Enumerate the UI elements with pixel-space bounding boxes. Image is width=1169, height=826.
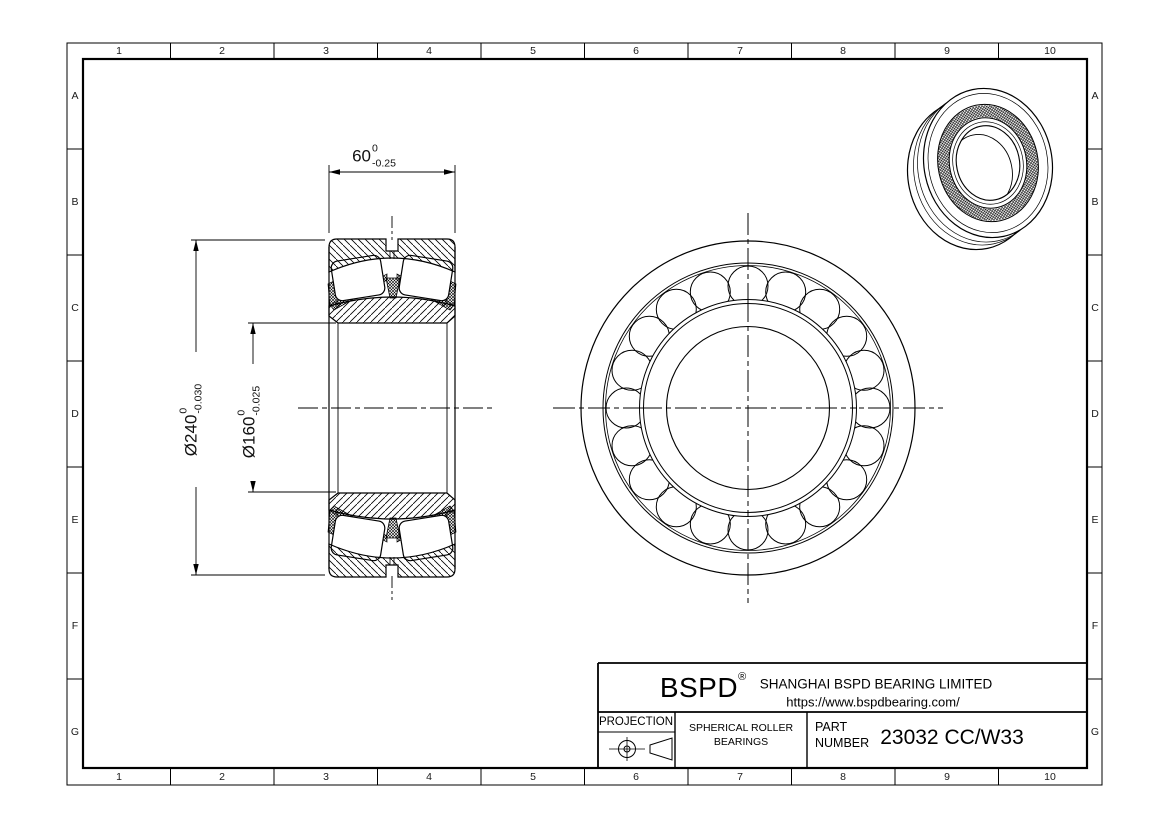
grid-column-label: 5: [530, 772, 536, 783]
grid-column-label: 3: [323, 46, 329, 57]
grid-row-label: C: [71, 303, 79, 314]
grid-row-label: G: [71, 727, 79, 738]
grid-column-label: 4: [426, 772, 432, 783]
grid-column-label: 9: [944, 772, 950, 783]
front-view: [553, 213, 943, 603]
grid-column-label: 10: [1044, 46, 1056, 57]
grid-column-label: 7: [737, 46, 743, 57]
grid-column-label: 2: [219, 772, 225, 783]
grid-column-label: 2: [219, 46, 225, 57]
dimension-od-label: Ø240 0 -0.030: [179, 384, 204, 456]
product-type-line1: SPHERICAL ROLLER: [689, 722, 793, 734]
grid-row-label: C: [1091, 303, 1099, 314]
grid-column-label: 7: [737, 772, 743, 783]
dimension-width-tol-upper: 0: [372, 144, 396, 155]
grid-row-label: A: [71, 91, 78, 102]
grid-row-label: D: [71, 409, 79, 420]
drawing-linework: [0, 0, 1169, 826]
grid-column-label: 1: [116, 46, 122, 57]
dimension-width-tol-lower: -0.25: [372, 158, 396, 169]
grid-column-label: 6: [633, 772, 639, 783]
company-logo: BSPD ®: [660, 674, 746, 702]
grid-column-label: 9: [944, 46, 950, 57]
grid-column-label: 1: [116, 772, 122, 783]
part-number-label-line1: PART: [815, 720, 847, 734]
grid-row-label: A: [1091, 91, 1098, 102]
grid-row-label: D: [1091, 409, 1099, 420]
grid-column-label: 5: [530, 46, 536, 57]
drawing-sheet: 1 2 3 4 5 6 7 8 9 10 1 2 3 4 5 6 7 8 9 1…: [0, 0, 1169, 826]
grid-column-label: 8: [840, 772, 846, 783]
dimension-bore-tol-upper: 0: [237, 386, 248, 416]
dimension-bore-label: Ø160 0 -0.025: [237, 386, 262, 458]
dimension-bore-value: Ø160: [241, 417, 258, 459]
grid-row-label: B: [71, 197, 78, 208]
dimension-width-value: 60: [352, 148, 371, 165]
company-name: SHANGHAI BSPD BEARING LIMITED: [760, 677, 993, 692]
grid-column-label: 10: [1044, 772, 1056, 783]
part-number-value: 23032 CC/W33: [880, 726, 1024, 750]
isometric-view: [894, 76, 1066, 261]
dimension-od-tol-lower: -0.030: [193, 384, 204, 414]
grid-row-label: G: [1091, 727, 1099, 738]
grid-row-label: E: [71, 515, 78, 526]
dimension-width-label: 60 0 -0.25: [352, 144, 396, 169]
product-type-line2: BEARINGS: [714, 736, 768, 748]
grid-column-label: 8: [840, 46, 846, 57]
company-website: https://www.bspdbearing.com/: [786, 695, 959, 710]
grid-column-label: 6: [633, 46, 639, 57]
grid-row-label: B: [1091, 197, 1098, 208]
company-logo-text: BSPD: [660, 674, 738, 702]
grid-column-label: 3: [323, 772, 329, 783]
dimension-bore-tol-lower: -0.025: [251, 386, 262, 416]
registered-trademark-icon: ®: [738, 672, 746, 683]
grid-row-label: F: [72, 621, 78, 632]
grid-row-label: E: [1091, 515, 1098, 526]
dimension-od-value: Ø240: [183, 415, 200, 457]
grid-column-label: 4: [426, 46, 432, 57]
projection-symbol-icon: [609, 737, 672, 761]
section-view: [298, 216, 492, 600]
dimension-od-tol-upper: 0: [179, 384, 190, 414]
projection-label: PROJECTION: [599, 716, 673, 728]
grid-row-label: F: [1092, 621, 1098, 632]
part-number-label-line2: NUMBER: [815, 736, 869, 750]
